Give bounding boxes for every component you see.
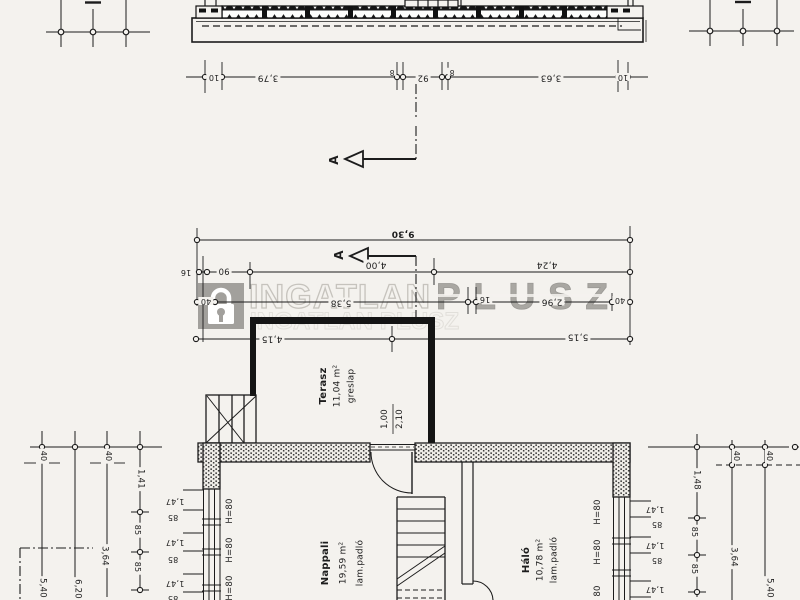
room-terasz-area: 11,04 m²: [334, 365, 343, 408]
plan-dim-total: 9,30: [391, 229, 414, 238]
sec-dim-2: 8: [388, 68, 397, 76]
door-width-label: 1,00: [381, 409, 390, 429]
sec-dim-5: 3,63: [539, 73, 564, 82]
plan-dim-r2-0: 16: [179, 268, 194, 276]
win-dim-left-0: 1,47: [166, 497, 185, 505]
window-h-left-0: H=80: [226, 498, 235, 523]
sec-dim-0: 10: [207, 73, 222, 81]
plan-dim-r3-2: 16: [478, 295, 493, 303]
col-dim-left-3: 40: [104, 449, 112, 464]
col-dim-right-4: 3,64: [729, 545, 738, 569]
room-halo-floor: lam.padló: [551, 537, 560, 583]
plan-dim-r2-1: 90: [216, 266, 231, 275]
window-h-left-2: H=80: [226, 575, 235, 600]
col-dim-right-5: 40: [765, 449, 773, 464]
win-dim-right-1: 85: [652, 520, 663, 528]
floorplan-sheet: INGATLAN PLUSZ INGATLAN PLUSZ: [0, 0, 800, 600]
win-dim-left-1: 85: [168, 513, 179, 521]
col-dim-right-0: 1,48: [692, 468, 701, 492]
col-dim-right-1: 85: [690, 525, 698, 540]
win-dim-right-2: 1,47: [646, 541, 665, 549]
plan-dim-r2-2: 4,00: [364, 260, 389, 269]
room-terasz-floor: greslap: [348, 369, 357, 404]
plan-dim-r3-4: 40: [613, 296, 628, 304]
col-dim-left-7: 85: [133, 560, 141, 575]
plan-dim-r4-0: 4,15: [260, 334, 285, 343]
win-dim-right-4: 1,47: [646, 585, 665, 593]
plan-dim-r4-1: 5,15: [566, 332, 591, 341]
win-dim-left-5: 85: [168, 594, 179, 600]
window-h-left-1: H=80: [226, 537, 235, 562]
plan-dim-r3-0: 40: [199, 297, 214, 305]
sec-dim-6: 10: [616, 73, 631, 81]
win-dim-left-4: 1,47: [166, 579, 185, 587]
room-nappali-floor: lam.padló: [357, 540, 366, 586]
window-h-right-2: 80: [594, 585, 603, 596]
col-dim-left-4: 3,64: [100, 544, 109, 568]
room-halo-area: 10,78 m²: [537, 539, 546, 582]
col-dim-left-6: 85: [133, 523, 141, 538]
win-dim-left-3: 85: [168, 555, 179, 563]
sec-dim-1: 3,79: [256, 73, 281, 82]
plan-dim-r3-3: 2,96: [540, 297, 565, 306]
room-nappali-name: Nappali: [321, 541, 331, 585]
section-letter-lower: A: [333, 250, 345, 260]
win-dim-left-2: 1,47: [166, 538, 185, 546]
window-h-right-1: H=80: [594, 539, 603, 564]
sec-dim-4: 8: [448, 68, 457, 76]
col-dim-left-5: 1,41: [136, 467, 145, 491]
col-dim-right-2: 85: [690, 562, 698, 577]
window-h-right-0: H=80: [594, 499, 603, 524]
section-letter-upper: A: [328, 155, 340, 165]
col-dim-left-1: 5,40: [38, 576, 47, 600]
col-dim-left-2: 6,20: [73, 577, 82, 600]
col-dim-right-3: 40: [732, 449, 740, 464]
door-height-label: 2,10: [396, 409, 405, 429]
plan-dim-r2-3: 4,24: [535, 260, 560, 269]
win-dim-right-0: 1,47: [646, 505, 665, 513]
room-terasz-name: Terasz: [319, 368, 329, 405]
room-nappali-area: 19,59 m²: [340, 542, 349, 585]
sec-dim-3: 92: [415, 73, 430, 82]
room-halo-name: Háló: [522, 547, 532, 573]
plan-dim-r3-1: 5,38: [329, 298, 354, 307]
win-dim-right-3: 85: [652, 556, 663, 564]
col-dim-left-0: 40: [39, 449, 47, 464]
col-dim-right-6: 5,40: [765, 576, 774, 600]
dimension-labels: 103,7989283,63109,3016904,004,24405,3816…: [0, 0, 800, 600]
